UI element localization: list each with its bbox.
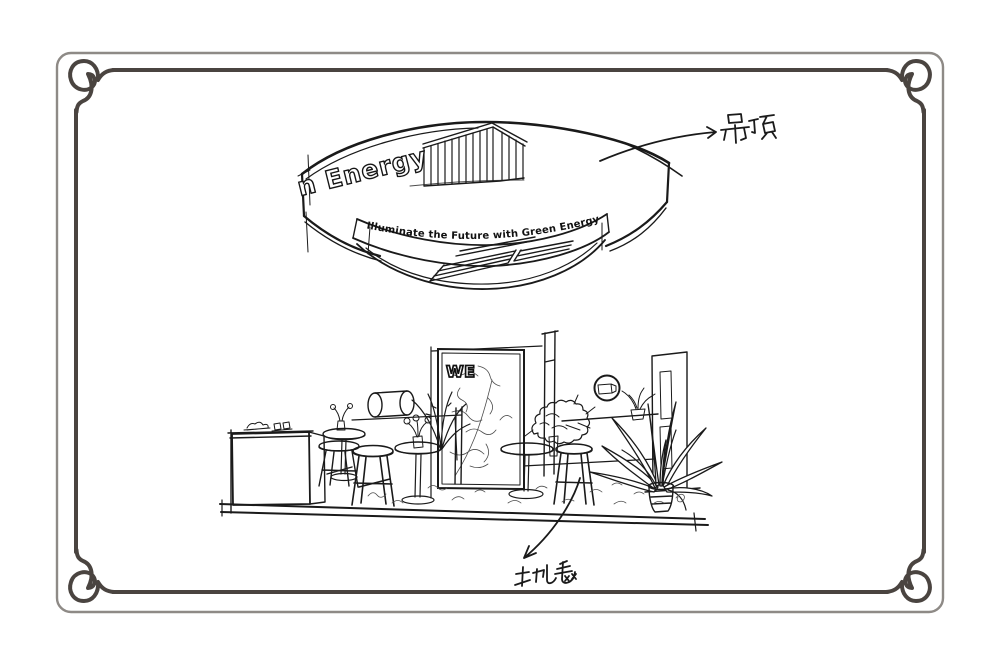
counter-top-items <box>244 422 292 431</box>
frame-corner-ornament-bottom-right <box>886 550 930 601</box>
carpet-annotation: 地毯 <box>514 478 580 595</box>
frame-inner-border <box>76 70 924 592</box>
ceiling-sketch: n Energy Illuminate the Future with Gree… <box>294 122 669 289</box>
booth-sketch: WE <box>220 331 722 531</box>
ceiling-brand-text: n Energy <box>294 142 430 202</box>
panel-logo-text: WE <box>446 362 476 381</box>
ceiling-top-slats <box>423 123 527 186</box>
decorative-frame <box>57 53 943 612</box>
frame-corner-ornament-top-left <box>70 61 114 112</box>
wall-sign-circle <box>595 376 620 401</box>
ceiling-annotation-stray-line <box>622 142 682 176</box>
reception-counter <box>228 422 325 513</box>
ceiling-slogan: Illuminate the Future with Green Energy <box>366 214 601 242</box>
bar-table-b <box>395 415 441 504</box>
frame-corner-ornament-bottom-left <box>70 550 114 601</box>
bar-stool-b <box>352 446 394 507</box>
frame-corner-ornament-top-right <box>886 61 930 112</box>
carpet-annotation-label: 地毯 <box>514 567 562 595</box>
large-potted-plant <box>590 402 722 512</box>
ceiling-annotation-label: 吊顶 <box>720 118 768 146</box>
frame-outer-border <box>57 53 943 612</box>
booth-design-sketch-page: n Energy Illuminate the Future with Gree… <box>0 0 1000 670</box>
sketch-canvas: n Energy Illuminate the Future with Gree… <box>0 0 1000 670</box>
table-a-flower-vase <box>331 404 353 431</box>
ceiling-slogan-text: Illuminate the Future with Green Energy <box>366 214 601 242</box>
graphic-panel: WE <box>438 349 524 489</box>
